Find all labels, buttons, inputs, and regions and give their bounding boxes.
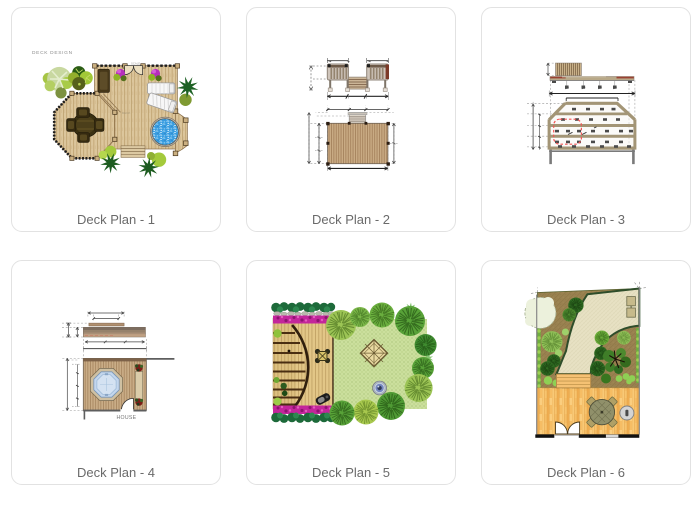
svg-text:DECK: DECK bbox=[122, 111, 130, 115]
svg-text:HOUSE: HOUSE bbox=[117, 415, 137, 421]
svg-text:SCALE: SCALE bbox=[131, 62, 140, 66]
svg-text:DECK DESIGN: DECK DESIGN bbox=[32, 50, 73, 56]
